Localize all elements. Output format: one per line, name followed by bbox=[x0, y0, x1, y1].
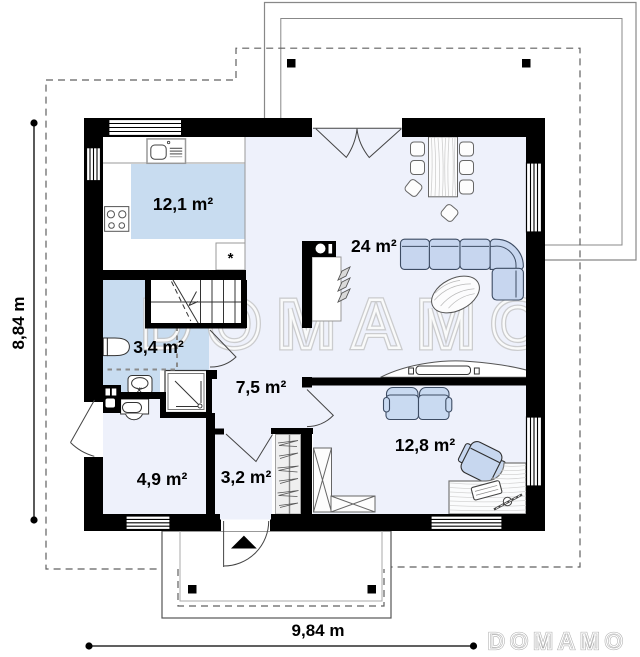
svg-text:12,1 m²: 12,1 m² bbox=[153, 194, 213, 214]
svg-text:3,2 m²: 3,2 m² bbox=[221, 467, 272, 487]
svg-text:12,8 m²: 12,8 m² bbox=[395, 435, 455, 455]
svg-text:9,84 m: 9,84 m bbox=[292, 621, 345, 640]
svg-text:DOMAMO: DOMAMO bbox=[488, 628, 628, 654]
svg-text:7,5 m²: 7,5 m² bbox=[236, 377, 287, 397]
svg-text:4,9 m²: 4,9 m² bbox=[137, 469, 188, 489]
svg-text:*: * bbox=[228, 250, 234, 267]
svg-text:3,4 m²: 3,4 m² bbox=[133, 337, 184, 357]
svg-text:24 m²: 24 m² bbox=[351, 236, 397, 256]
svg-text:8,84 m: 8,84 m bbox=[9, 297, 28, 350]
